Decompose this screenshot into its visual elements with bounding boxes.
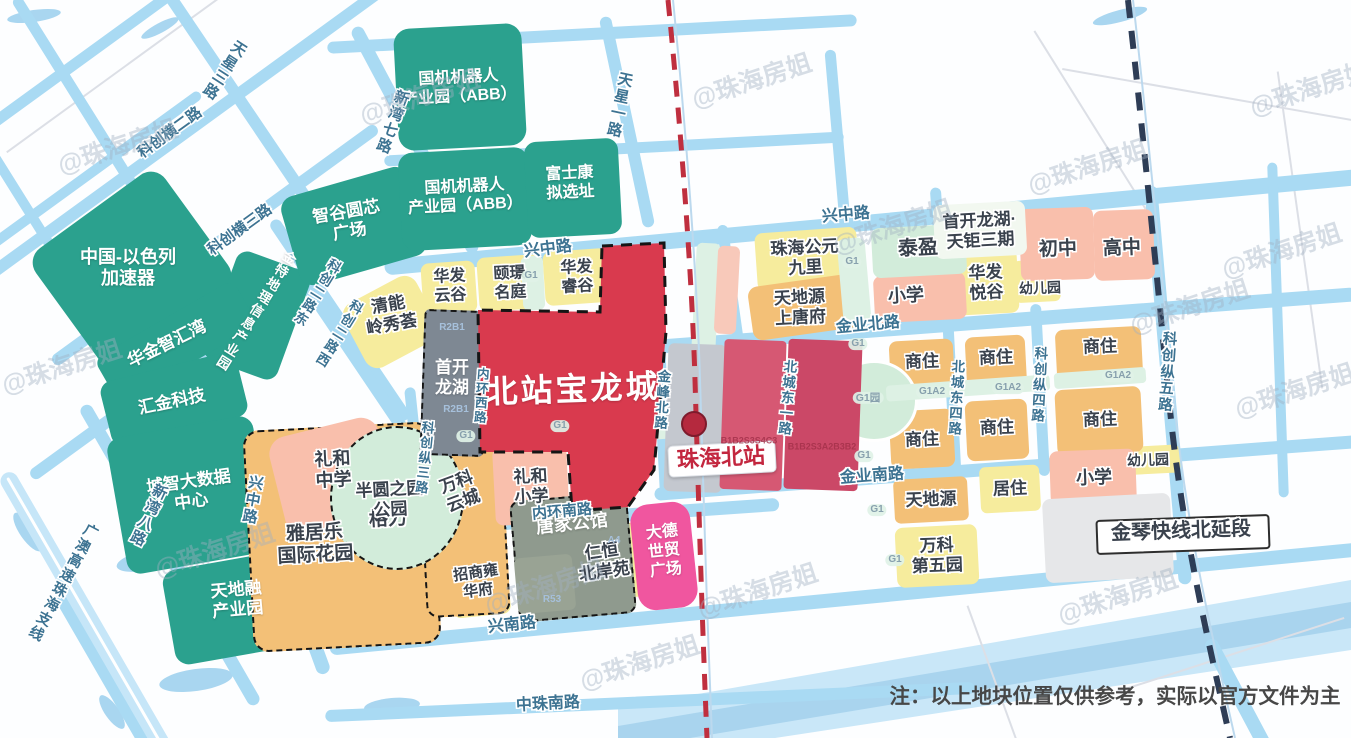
label-senior-high: 高中 bbox=[1103, 237, 1142, 261]
label-code-r2b1-a: R2B1 bbox=[439, 322, 465, 334]
label-huafa-yungu: 华发云谷 bbox=[433, 267, 467, 306]
label-zhuhaibei: 珠海北站 bbox=[676, 443, 765, 474]
label-wanke-diwuyuan: 万科第五园 bbox=[911, 535, 963, 577]
label-code-a4: A4 bbox=[608, 535, 621, 547]
station-dot bbox=[682, 412, 706, 436]
label-g1-i: G1 bbox=[885, 554, 904, 566]
railway-layer bbox=[0, 0, 1351, 738]
label-rd-jinfeng-north: 金峰北路 bbox=[652, 369, 670, 432]
label-shangzhu-4: 商住 bbox=[905, 429, 940, 450]
label-rd-zhongzhu-south: 中珠南路 bbox=[516, 694, 581, 716]
label-g1-e: G1 bbox=[848, 338, 867, 350]
label-shangzhu-6: 商住 bbox=[1083, 409, 1118, 430]
label-g1a2-c: G1A2 bbox=[1102, 370, 1134, 382]
label-shangzhu-5: 商住 bbox=[980, 417, 1015, 438]
label-junior-high: 初中 bbox=[1039, 238, 1078, 262]
label-kindergarten-top: 幼儿园 bbox=[1019, 279, 1062, 297]
label-g1-g: G1 bbox=[854, 450, 873, 462]
label-huafa-ruigu: 华发睿谷 bbox=[560, 258, 594, 297]
label-g1-b: G1 bbox=[456, 430, 475, 442]
label-g1a2-b: G1A2 bbox=[992, 382, 1024, 394]
label-foxconn-site: 富士康拟选址 bbox=[545, 164, 595, 204]
label-abb-park-2: 国机机器人产业园（ABB） bbox=[407, 175, 523, 219]
label-g1-a: G1 bbox=[521, 270, 540, 282]
label-g1-h: G1 bbox=[867, 504, 886, 516]
label-primary-top: 小学 bbox=[887, 284, 924, 307]
label-g1-c: G1 bbox=[550, 420, 569, 432]
label-shangzhu-3: 商住 bbox=[1083, 336, 1118, 357]
label-yajule: 雅居乐国际花园 bbox=[276, 521, 354, 570]
label-juzhu: 居住 bbox=[993, 478, 1028, 499]
label-lihe-middle: 礼和中学 bbox=[314, 448, 352, 492]
label-primary-bottom: 小学 bbox=[1076, 467, 1113, 489]
label-shangtangfu: 天地源上唐府 bbox=[773, 287, 826, 330]
label-code-b1-a: B1B2S3S4C3 bbox=[721, 436, 778, 447]
label-tiandirong-park: 天地融产业园 bbox=[210, 578, 264, 622]
label-baolongcheng: 北站宝龙城 bbox=[485, 368, 661, 412]
label-note: 注：以上地块位置仅供参考，实际以官方文件为主 bbox=[890, 685, 1341, 709]
label-g1a2-a: G1A2 bbox=[916, 386, 948, 398]
label-code-r2b1-b: R2B1 bbox=[443, 404, 469, 416]
planning-map: 中国-以色列加速器金特地理信息产业园华金智汇湾汇金科技城智大数据中心天地融产业园… bbox=[0, 0, 1351, 738]
label-lihe-primary: 礼和小学 bbox=[513, 466, 549, 508]
label-code-b1-b: B1B2S3A2B3B2 bbox=[788, 442, 857, 453]
label-rd-neihuan-west: 内环西路 bbox=[472, 367, 489, 426]
label-china-israel-accelerator: 中国-以色列加速器 bbox=[80, 247, 176, 289]
label-huafa-yuegu: 华发悦谷 bbox=[968, 262, 1004, 304]
label-kindergarten-bottom: 幼儿园 bbox=[1127, 451, 1170, 469]
label-rd-kechuang-zong-4: 科创纵四路 bbox=[1029, 346, 1047, 424]
label-shoukai-longhu: 首开龙湖 bbox=[435, 358, 469, 398]
label-shangzhu-1: 商住 bbox=[905, 351, 940, 372]
label-yijing-mingting: 颐璟名庭 bbox=[493, 264, 527, 303]
label-rd-beicheng-east-4: 北城东四路 bbox=[946, 359, 964, 437]
label-jinqin: 金琴快线北延段 bbox=[1111, 518, 1252, 546]
label-shangzhu-2: 商住 bbox=[979, 347, 1014, 368]
label-gongyuan-jiuli: 珠海公元九里 bbox=[770, 236, 840, 280]
label-dade-plaza: 大德世贸广场 bbox=[645, 522, 683, 582]
label-tiandiyuan: 天地源 bbox=[905, 489, 957, 511]
label-g1-f: G1园 bbox=[853, 392, 884, 404]
